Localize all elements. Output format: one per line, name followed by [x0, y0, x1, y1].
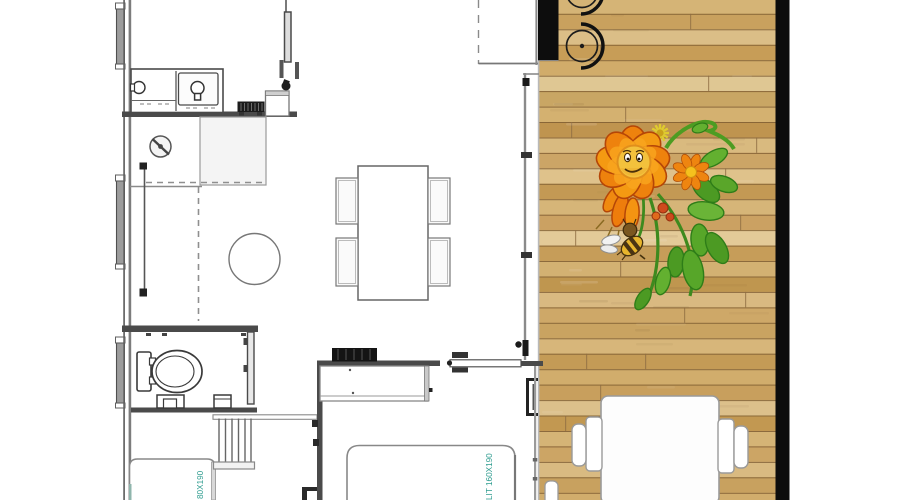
svg-text:80X190: 80X190: [196, 470, 205, 499]
svg-text:LIT 160X190: LIT 160X190: [485, 453, 494, 500]
